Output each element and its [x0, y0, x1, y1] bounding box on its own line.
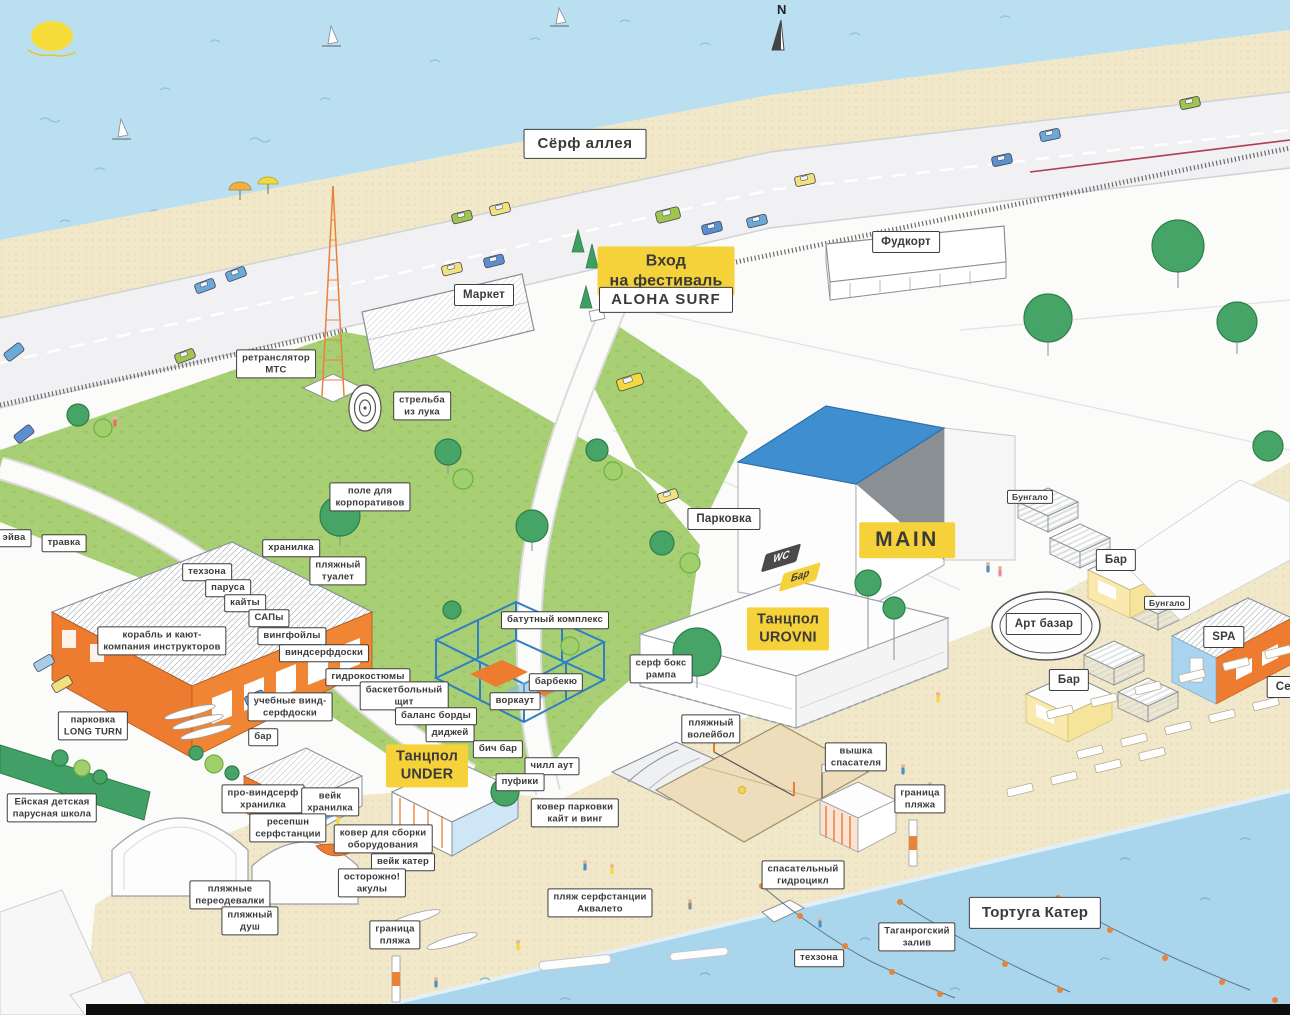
festival-map: N Сёрф аллеяМаркетФудкортВход на фестива… — [0, 0, 1290, 1015]
archery-target — [349, 385, 381, 431]
volleyball-icon — [739, 787, 746, 794]
compass-north-label: N — [777, 2, 786, 17]
map-illustration — [0, 0, 1290, 1015]
bottom-strip — [86, 1004, 1290, 1015]
art-bazaar-tent — [992, 592, 1100, 660]
